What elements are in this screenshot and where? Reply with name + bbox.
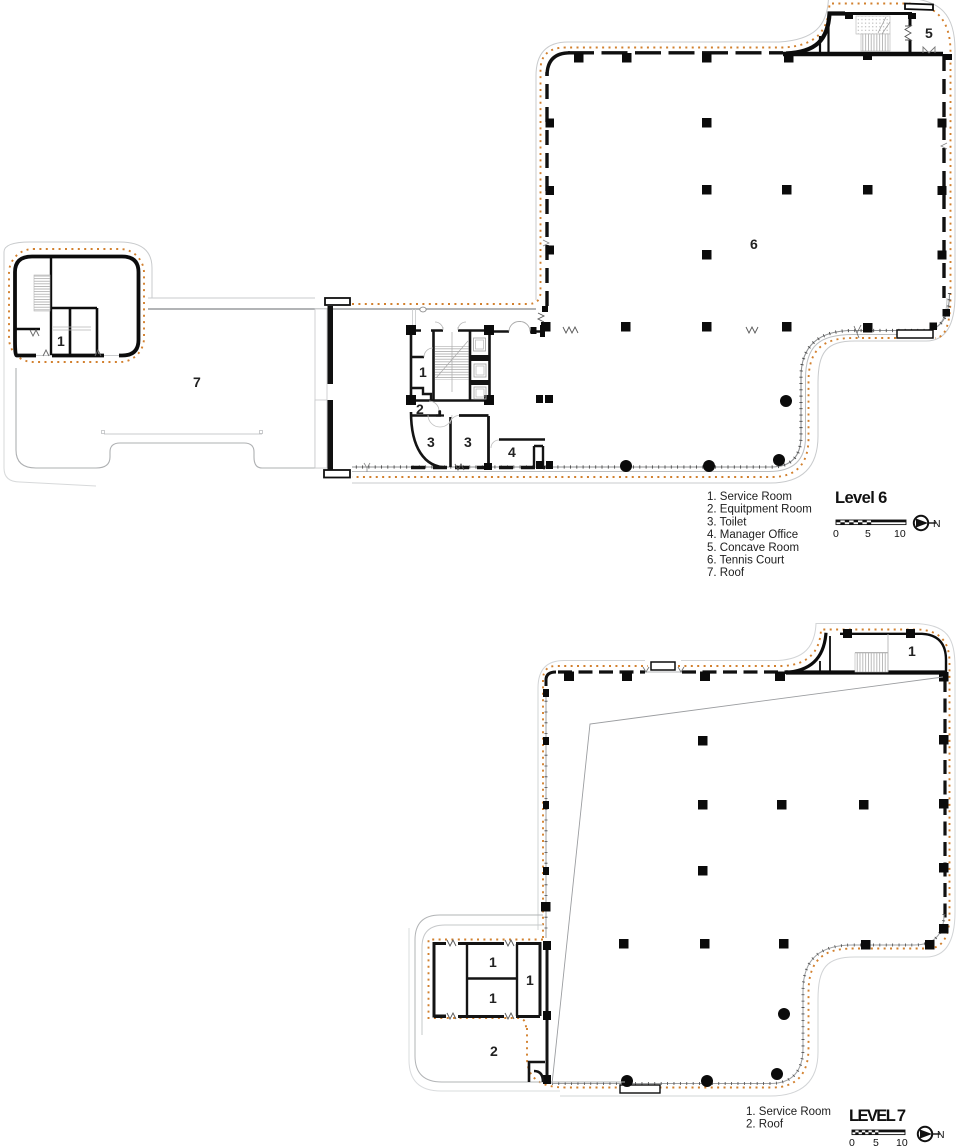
- svg-text:3: 3: [427, 434, 435, 450]
- svg-text:3: 3: [464, 434, 472, 450]
- svg-text:5. Concave Room: 5. Concave Room: [707, 542, 799, 554]
- svg-text:5: 5: [873, 1137, 879, 1147]
- svg-text:LEVEL 7: LEVEL 7: [849, 1107, 906, 1125]
- svg-text:6: 6: [750, 236, 758, 252]
- svg-text:10: 10: [896, 1137, 908, 1147]
- svg-text:1: 1: [908, 643, 916, 659]
- svg-text:1: 1: [419, 364, 427, 380]
- svg-text:0: 0: [833, 528, 839, 540]
- svg-text:7: 7: [193, 374, 201, 390]
- svg-text:4. Manager Office: 4. Manager Office: [707, 529, 798, 541]
- svg-text:1: 1: [57, 333, 65, 349]
- svg-text:10: 10: [894, 528, 906, 540]
- svg-text:N: N: [937, 1129, 945, 1141]
- svg-text:1: 1: [489, 990, 497, 1006]
- svg-text:2. Equitpment Room: 2. Equitpment Room: [707, 504, 812, 516]
- svg-text:1. Service Room: 1. Service Room: [746, 1106, 831, 1118]
- svg-text:2: 2: [416, 401, 424, 417]
- svg-text:7. Roof: 7. Roof: [707, 567, 745, 579]
- svg-text:5: 5: [925, 25, 933, 41]
- svg-text:0: 0: [849, 1137, 855, 1147]
- svg-text:N: N: [933, 518, 941, 530]
- svg-text:2: 2: [490, 1043, 498, 1059]
- svg-text:3. Toilet: 3. Toilet: [707, 516, 747, 528]
- svg-text:4: 4: [508, 444, 516, 460]
- svg-text:2. Roof: 2. Roof: [746, 1119, 784, 1131]
- svg-text:5: 5: [865, 528, 871, 540]
- svg-text:Level 6: Level 6: [835, 489, 887, 507]
- svg-text:1. Service Room: 1. Service Room: [707, 491, 792, 503]
- svg-text:1: 1: [526, 972, 534, 988]
- svg-text:1: 1: [489, 954, 497, 970]
- svg-text:6. Tennis Court: 6. Tennis Court: [707, 555, 785, 567]
